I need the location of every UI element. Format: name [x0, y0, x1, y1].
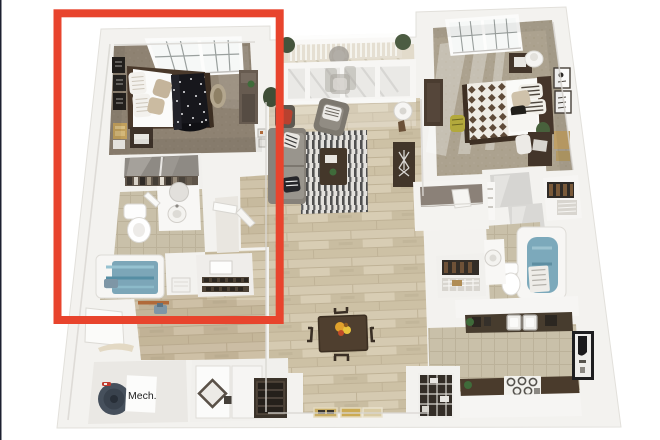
- svg-text:Mech.: Mech.: [128, 390, 157, 402]
